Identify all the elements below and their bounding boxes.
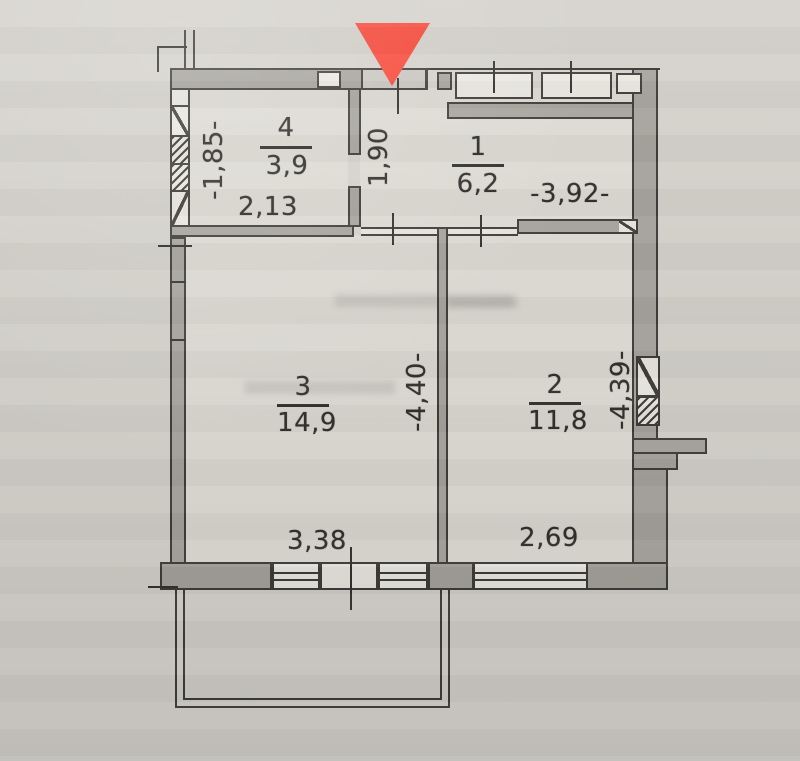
dim-room-2-height: -4,39- (608, 350, 634, 430)
bottom-window (473, 562, 588, 590)
window-axis-tick (570, 61, 572, 93)
wall-stub-line (157, 46, 187, 48)
hall-left-wall-lower (348, 186, 361, 227)
top-window-box (616, 73, 642, 94)
room-2-number: 2 (546, 372, 563, 398)
left-vent-shaft-icon (170, 105, 190, 137)
left-vent-hatch-icon (170, 163, 190, 192)
bottom-wall-segment (428, 562, 474, 590)
room-3-fraction-line (277, 404, 329, 407)
dim-room-3-width: 3,38 (287, 528, 347, 554)
room-4-number: 4 (277, 115, 294, 141)
room-1-area: 6,2 (457, 171, 500, 197)
room-2-fraction-line (529, 402, 581, 405)
wall-joint-line (170, 281, 186, 283)
left-wall-room-3 (170, 237, 186, 564)
right-vent-shaft-icon (636, 356, 660, 397)
left-vent-hatch-icon (170, 135, 190, 165)
room-3-area: 14,9 (277, 410, 337, 436)
wall-edge-arrow (148, 586, 178, 588)
left-vent-shaft-icon (170, 190, 190, 227)
window-axis-tick (493, 61, 495, 93)
dim-room-2-width: 2,69 (519, 525, 579, 551)
room2-door-opening (448, 227, 518, 236)
room3-room2-divider-wall (437, 227, 448, 564)
hall-room3-partition (361, 227, 437, 236)
dim-hall-width: 1,90 (366, 127, 392, 187)
right-vent-hatch-icon (636, 396, 660, 426)
room-1-fraction-line (452, 164, 504, 167)
dim-room-4-height: -1,85- (201, 120, 227, 200)
room-4-bottom-wall (170, 225, 354, 237)
wall-joint-line (170, 339, 186, 341)
dim-divider-height: -4,40- (404, 352, 430, 432)
hall-left-wall-upper (348, 88, 361, 155)
watermark-smudge (448, 297, 518, 308)
room-2-area: 11,8 (528, 408, 588, 434)
room-3-number: 3 (294, 374, 311, 400)
room-2-floor (448, 233, 632, 562)
bottom-window (378, 562, 428, 590)
balcony-door-opening (320, 562, 378, 590)
right-wall-lower (632, 468, 668, 564)
wall-pier (437, 72, 452, 90)
door-axis-tick (480, 215, 482, 247)
bottom-window (272, 562, 320, 590)
room-4-fraction-line (260, 146, 312, 149)
dim-room-4-width: 2,13 (238, 194, 298, 220)
bottom-wall-corner (586, 562, 668, 590)
balcony-door-axis-tick (350, 547, 352, 610)
dim-room-1-width: -3,92- (530, 181, 610, 207)
room-1-number: 1 (469, 134, 486, 160)
entrance-marker-triangle-icon (355, 23, 430, 86)
door-hinge-notch (317, 71, 341, 88)
top-window-box (541, 72, 612, 99)
wall-stub-top-left (184, 30, 195, 70)
watermark-smudge (245, 381, 395, 394)
top-outer-line (428, 68, 660, 70)
door-leaf-diagonal (619, 221, 636, 232)
wall-stub-line (157, 46, 159, 72)
floorplan-photo: { "plan": { "type": "apartment-floor-pla… (0, 0, 800, 761)
door-axis-tick (392, 213, 394, 245)
balcony-outline-inner (183, 589, 442, 700)
wall-axis-tick (158, 245, 192, 247)
hall-top-wall-band (447, 102, 658, 119)
room-4-area: 3,9 (266, 153, 309, 179)
